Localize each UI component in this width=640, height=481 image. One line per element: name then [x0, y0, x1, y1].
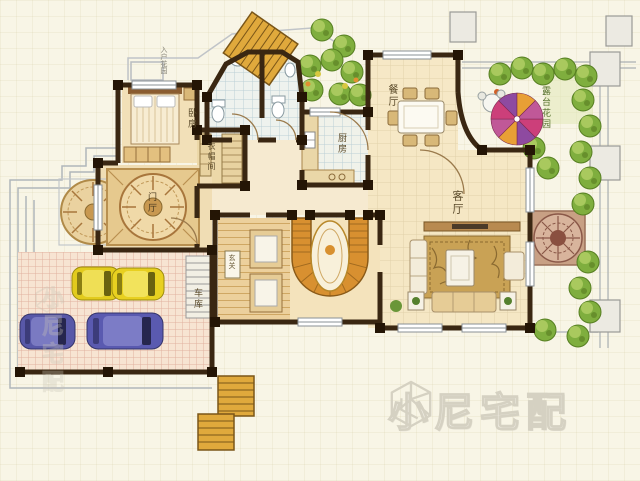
terrace-medallion: [531, 211, 585, 265]
floor-plan: 入户花园 卧房 衣帽间 厨房 餐厅 客厅 露台花园 门厅 玄关 车库 小尼宅配 …: [0, 0, 640, 481]
label-cloakroom: 衣帽间: [207, 142, 215, 172]
car-blue-1: [20, 314, 75, 349]
label-dining-room: 餐厅: [386, 84, 396, 108]
label-entry-sign: 玄关: [228, 254, 235, 270]
parasol: [478, 90, 543, 145]
label-living-room: 客厅: [452, 190, 463, 216]
label-entry-garden: 入户花园: [160, 46, 167, 74]
grand-staircase: [292, 218, 368, 296]
label-garage: 车库: [192, 288, 201, 310]
floor-plan-drawing: [0, 0, 640, 481]
car-blue-2: [87, 313, 163, 349]
car-yellow-2: [112, 268, 164, 300]
label-bedroom: 卧房: [186, 108, 195, 130]
bottom-zigzag-stairs: [198, 376, 254, 450]
label-foyer: 门厅: [146, 192, 155, 214]
label-kitchen: 厨房: [336, 133, 345, 155]
label-terrace-garden: 露台花园: [540, 86, 549, 130]
